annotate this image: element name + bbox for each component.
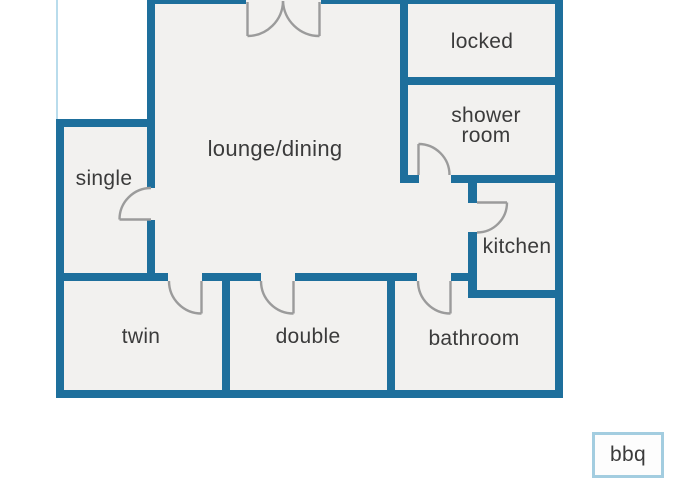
door-swing-bathroom (418, 281, 451, 314)
room-label-twin: twin (122, 327, 161, 347)
room-label-kitchen: kitchen (483, 237, 552, 257)
door-swing-shower-room (419, 144, 450, 175)
door-swings-layer (0, 0, 700, 500)
room-label-lounge-dining: lounge/dining (208, 139, 343, 159)
room-label-single: single (76, 169, 133, 189)
room-label-double: double (276, 327, 341, 347)
door-swing-entrance-left (248, 1, 284, 36)
floor-plan: lounge/dining single locked shower room … (0, 0, 700, 500)
room-label-shower-room: shower room (438, 106, 534, 146)
room-label-bathroom: bathroom (428, 329, 519, 349)
bbq-box: bbq (592, 432, 664, 478)
door-swing-single (120, 188, 152, 220)
door-swing-double (261, 281, 294, 314)
bbq-label: bbq (610, 443, 646, 467)
room-label-locked: locked (451, 32, 514, 52)
door-swing-kitchen (477, 203, 507, 233)
door-swing-entrance-right (283, 1, 320, 36)
door-swing-twin (169, 281, 202, 314)
